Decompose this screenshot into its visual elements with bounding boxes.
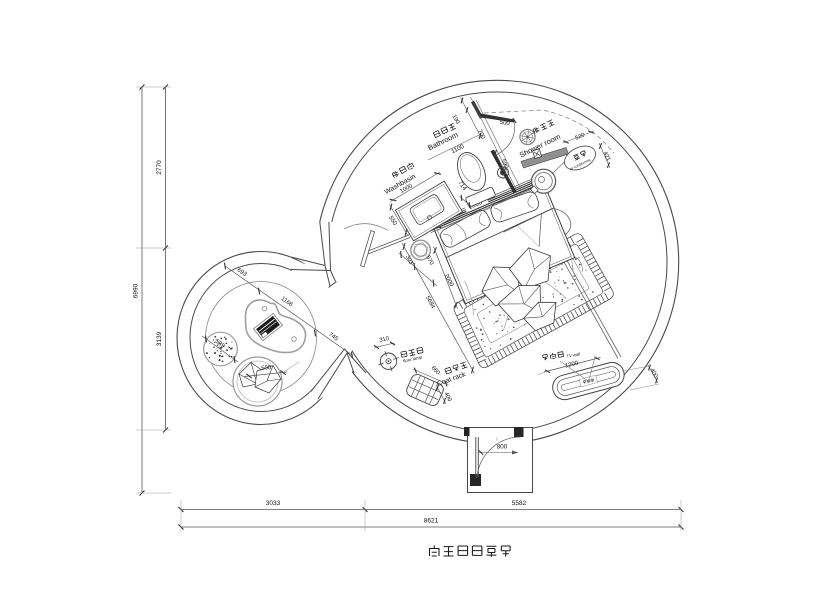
svg-text:6990: 6990 — [133, 283, 140, 298]
svg-text:5582: 5582 — [512, 500, 527, 507]
svg-text:800: 800 — [497, 444, 508, 451]
svg-text:500: 500 — [261, 365, 272, 372]
svg-text:8621: 8621 — [424, 518, 439, 525]
svg-text:3139: 3139 — [156, 331, 163, 346]
svg-text:3033: 3033 — [266, 500, 281, 507]
svg-text:2770: 2770 — [156, 160, 163, 175]
